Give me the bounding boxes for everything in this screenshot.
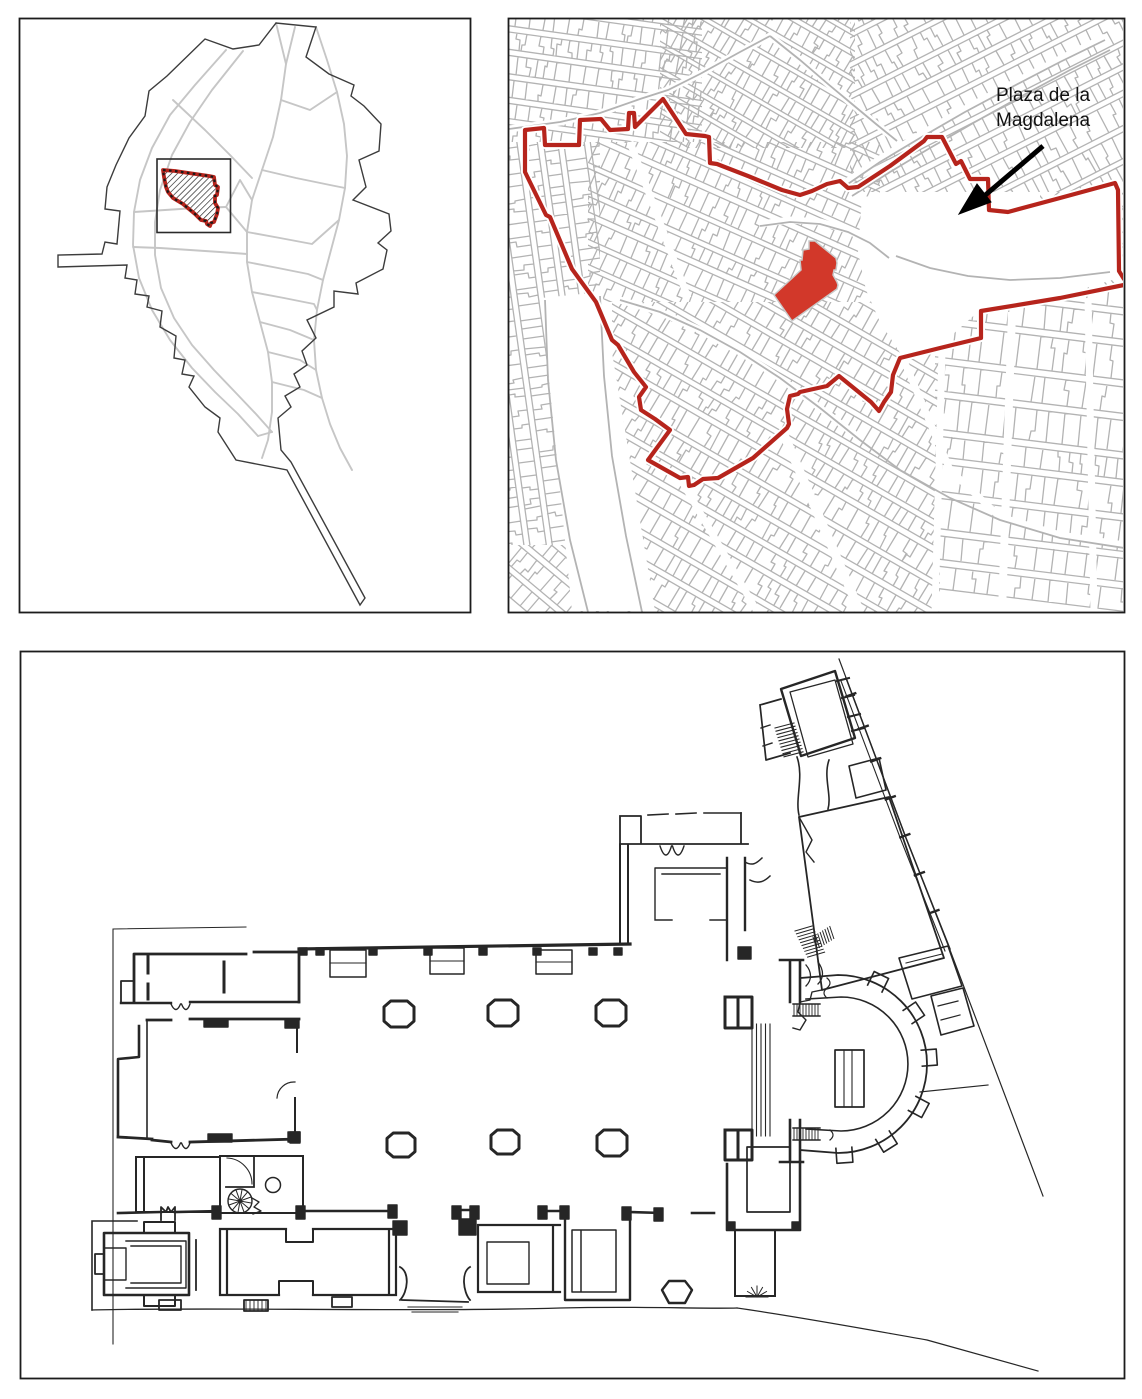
- svg-text:Magdalena: Magdalena: [996, 110, 1090, 131]
- svg-text:Plaza de la: Plaza de la: [996, 85, 1090, 106]
